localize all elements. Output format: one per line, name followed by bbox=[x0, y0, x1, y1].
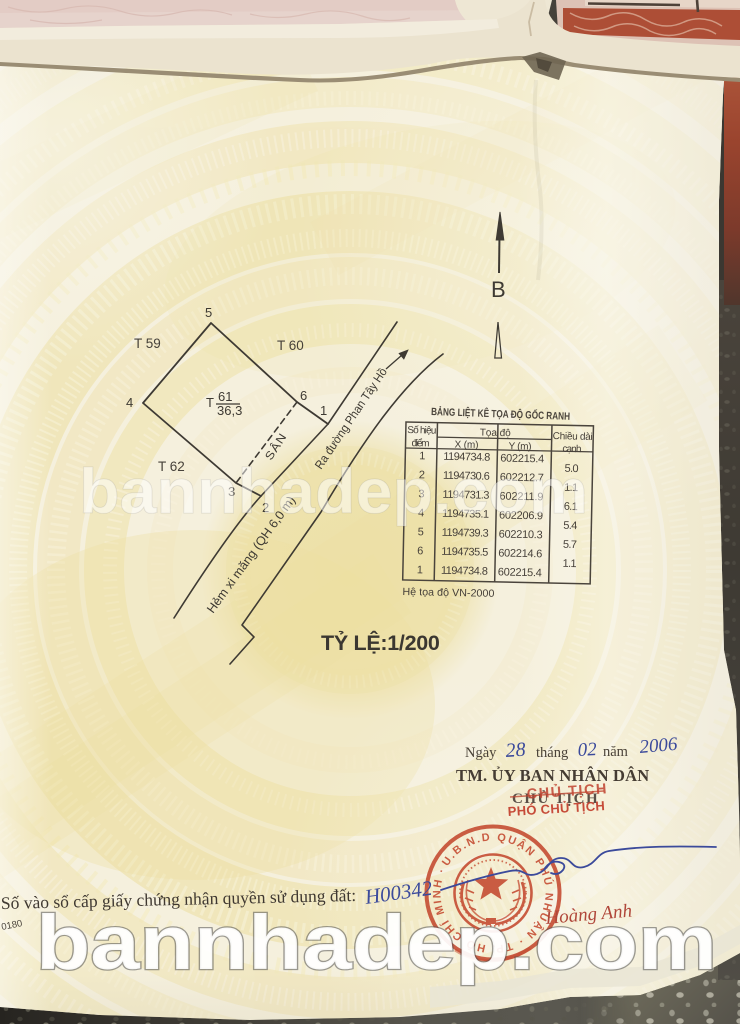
svg-text:bannhadep.com: bannhadep.com bbox=[36, 900, 717, 986]
